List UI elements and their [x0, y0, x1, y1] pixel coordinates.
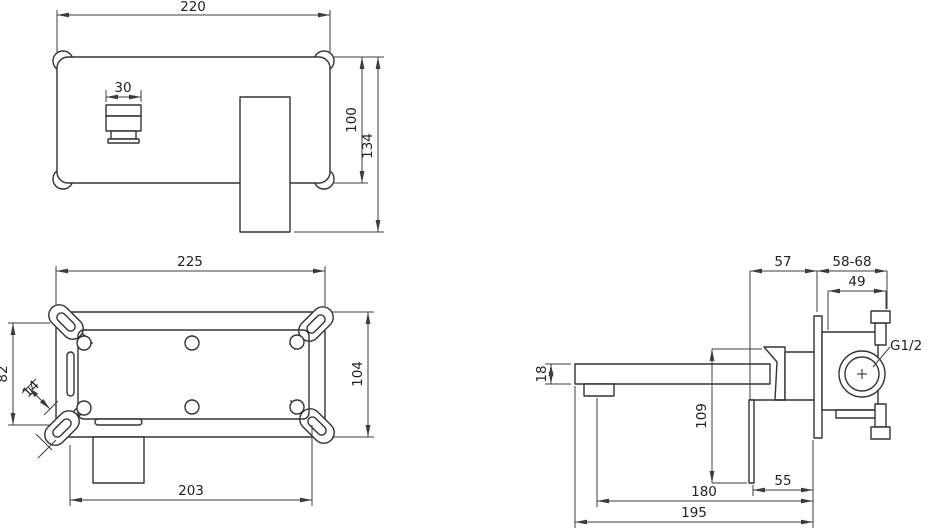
spout-end-lower [106, 116, 141, 131]
screw-hole [77, 336, 91, 350]
pipe-fitting-bottom-cap [871, 427, 890, 439]
dim-handle-length: 109 [694, 403, 710, 429]
wall-flange [814, 316, 822, 438]
mounting-bracket-view [40, 300, 338, 483]
dim-thread-size: G1/2 [890, 338, 922, 354]
handle-blade-side [749, 400, 754, 483]
spout-side [575, 364, 770, 384]
dim-handle-clearance: 55 [774, 473, 791, 489]
spout-end [106, 105, 141, 116]
bracket-body [56, 312, 325, 437]
front-view [53, 51, 334, 232]
dim-spout-height: 18 [534, 365, 550, 382]
dim-overall-height: 134 [360, 133, 376, 159]
pipe-fitting-bottom [875, 404, 886, 427]
side-slot [67, 352, 74, 396]
dim-bottom-width: 203 [178, 483, 204, 499]
dim-plate-width: 220 [180, 0, 206, 15]
pipe-fitting-top-cap [871, 311, 890, 323]
dim-wall-depth-range: 58-68 [832, 254, 871, 270]
aerator-side [584, 384, 614, 396]
dim-spout-reach: 195 [681, 505, 707, 521]
pipe-fitting-top [875, 323, 886, 345]
dim-plate-height: 100 [344, 107, 360, 133]
dim-spout-width: 30 [114, 80, 131, 96]
screw-hole [290, 400, 304, 414]
screw-hole [185, 336, 199, 350]
screw-hole [290, 335, 304, 349]
side-view [575, 311, 890, 483]
technical-drawing-canvas: 220 30 100 134 [0, 0, 930, 528]
aerator-lip [108, 139, 139, 143]
dim-bracket-height: 104 [350, 361, 366, 387]
bottom-slot [95, 419, 142, 425]
outlet-tab [93, 437, 144, 483]
dim-slot-spacing: 82 [0, 365, 11, 382]
drawing-page: 220 30 100 134 [0, 0, 930, 528]
screw-hole [185, 400, 199, 414]
aerator-neck [111, 131, 136, 139]
dim-bracket-width: 225 [177, 254, 203, 270]
dim-valve-width: 49 [848, 274, 865, 290]
handle-blade-front [240, 97, 290, 232]
screw-hole [77, 401, 91, 415]
dim-front-depth: 57 [774, 254, 791, 270]
escutcheon-body [785, 352, 815, 400]
valve-body-step [836, 410, 878, 418]
dim-slot-width: 14 [19, 377, 42, 400]
dim-aerator-reach: 180 [691, 484, 717, 500]
